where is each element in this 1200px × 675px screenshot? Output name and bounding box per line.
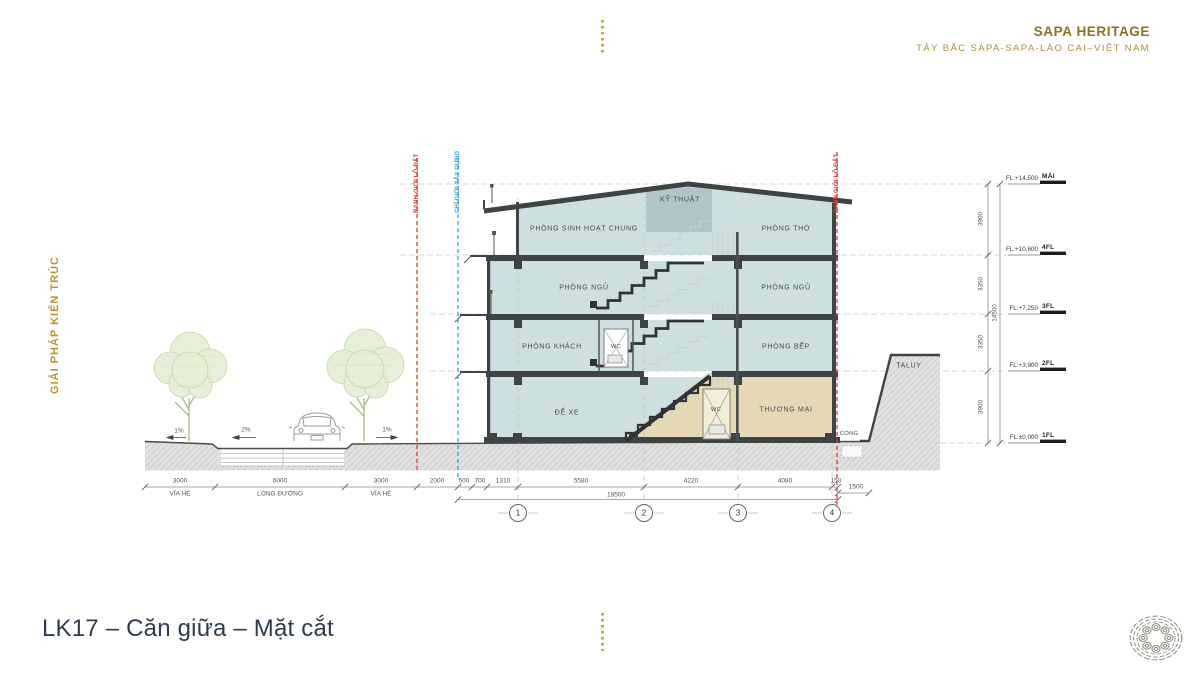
vdim-1: 3350 (978, 277, 985, 291)
grid-bubble-3: 3 (736, 509, 740, 518)
vdim-2: 3350 (978, 335, 985, 349)
cong-label: CỔNG (840, 431, 859, 437)
wc-1f-door (703, 389, 730, 439)
room-label-bep: PHÒNG BẾP (762, 344, 810, 351)
gate-footing (842, 446, 862, 457)
tech-box-fill (646, 187, 712, 232)
slope-right-label: 1% (382, 427, 391, 434)
vdim-3: 3900 (978, 400, 985, 414)
room-label-wc-2f: WC (611, 344, 621, 350)
taluy-label: TALUY (896, 363, 922, 370)
vdim-total: 14500 (992, 304, 999, 322)
brand-ornament-logo (1127, 612, 1185, 664)
road-subbase (219, 449, 346, 466)
room-label-ngu-left: PHÒNG NGỦ (559, 285, 608, 292)
level-4fl-tag: 4FL (1042, 244, 1054, 251)
room-label-ngu-right: PHÒNG NGỦ (761, 285, 810, 292)
tree-right (327, 329, 404, 441)
tree-left (154, 332, 227, 441)
site-dim-1: 6000 (273, 478, 287, 485)
site-dim-label-0: VỈA HÈ (170, 491, 191, 498)
section-drawing (0, 0, 1200, 675)
level-mai-tag: MÁI (1042, 173, 1055, 180)
site-dim-2: 3000 (374, 478, 388, 485)
level-3fl-tag: 3FL (1042, 303, 1054, 310)
level-mai-fl: FL:+14,500 (1006, 175, 1038, 182)
slope-left-label: 1% (174, 428, 183, 435)
vdim-0: 3900 (978, 212, 985, 226)
slope-mid-label: 2% (241, 427, 250, 434)
hdim-700: 700 (475, 478, 486, 485)
room-label-thuong-mai: THƯƠNG MẠI (759, 407, 812, 414)
grid-bubble-2: 2 (642, 509, 646, 518)
room-label-wc-1f: WC (711, 407, 721, 413)
hdim-4080: 4080 (778, 478, 792, 485)
hdim-1500: 1500 (849, 484, 863, 491)
slide: SAPA HERITAGE TÂY BẮC SAPA-SAPA-LÀO CAI–… (0, 0, 1200, 675)
room-label-de-xe: ĐỂ XE (555, 410, 580, 417)
level-2fl-fl: FL:+3,900 (1009, 362, 1038, 369)
lot-boundary-right-label: RANH GIỚI LÔ ĐẤT (834, 154, 840, 213)
trees (154, 329, 404, 441)
site-dim-0: 3000 (173, 478, 187, 485)
hdim-1310: 1310 (496, 478, 510, 485)
grid-bubble-1: 1 (516, 509, 520, 518)
room-label-sinh-hoat-chung: PHÒNG SINH HOẠT CHUNG (530, 226, 638, 233)
room-label-phong-tho: PHÒNG THỜ (761, 226, 810, 233)
room-label-ky-thuat: KỸ THUẬT (660, 197, 700, 204)
site-dim-label-1: LÒNG ĐƯỜNG (257, 491, 303, 498)
level-1fl-fl: FL:±0,000 (1010, 434, 1038, 441)
level-2fl-tag: 2FL (1042, 360, 1054, 367)
hdim-500: 500 (459, 478, 470, 485)
hdim-4220: 4220 (684, 478, 698, 485)
car (289, 413, 345, 441)
hdim-total: 18500 (607, 492, 625, 499)
site-dim-label-2: VỈA HÈ (371, 491, 392, 498)
hdim-150: 150 (831, 478, 842, 485)
lot-boundary-left-label: RANH GIỚI LÔ ĐẤT (414, 154, 420, 213)
grid-bubble-4: 4 (830, 509, 834, 518)
hdim-5580: 5580 (574, 478, 588, 485)
hdim-2000: 2000 (430, 478, 444, 485)
building-setback-label: CHỈ GIỚI XÂY DỰNG (455, 151, 461, 213)
level-4fl-fl: FL:+10,600 (1006, 246, 1038, 253)
room-label-khach: PHÒNG KHÁCH (522, 344, 582, 351)
level-3fl-fl: FL:+7,250 (1009, 305, 1038, 312)
level-1fl-tag: 1FL (1042, 432, 1054, 439)
